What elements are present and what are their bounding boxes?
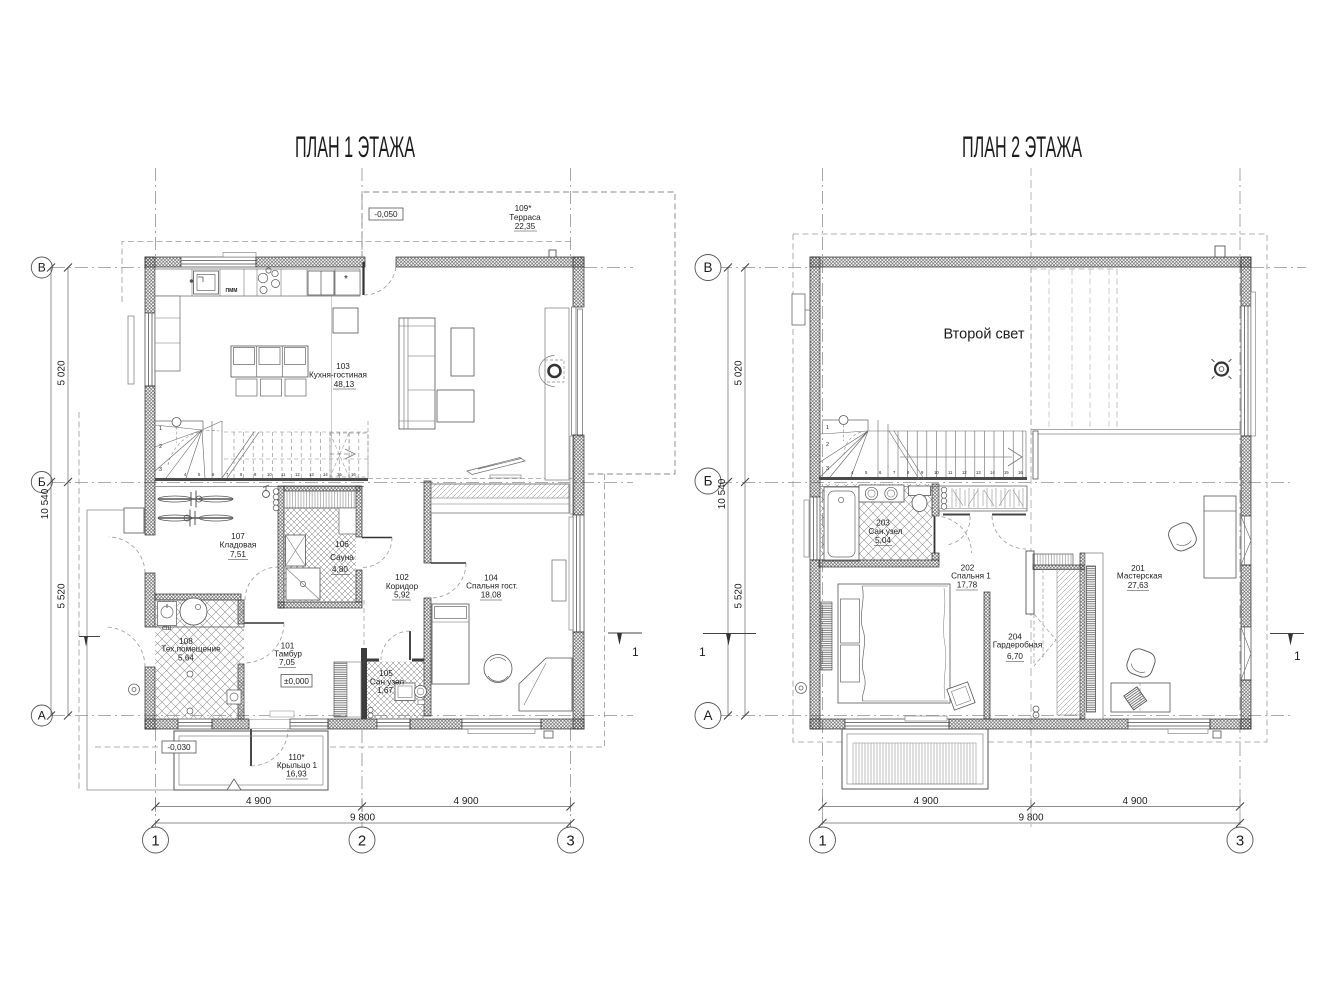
svg-text:Мастерская: Мастерская [1117, 572, 1162, 581]
svg-text:4,80: 4,80 [332, 565, 348, 574]
svg-text:16: 16 [351, 472, 356, 477]
svg-text:10: 10 [934, 470, 939, 475]
svg-text:А: А [38, 709, 46, 723]
svg-text:16: 16 [1018, 470, 1023, 475]
svg-text:±0,000: ±0,000 [284, 677, 309, 686]
svg-text:Спальня 1: Спальня 1 [951, 572, 991, 581]
svg-text:ПЛАН 1 ЭТАЖА: ПЛАН 1 ЭТАЖА [295, 131, 415, 164]
svg-text:5 520: 5 520 [734, 583, 745, 608]
svg-text:15: 15 [337, 472, 342, 477]
svg-text:3: 3 [1236, 832, 1244, 849]
svg-text:-0,050: -0,050 [374, 210, 398, 219]
svg-text:Б: Б [38, 475, 46, 489]
svg-text:102: 102 [395, 573, 409, 582]
svg-text:Кладовая: Кладовая [220, 541, 257, 550]
svg-text:17,78: 17,78 [957, 581, 978, 590]
svg-text:Сауна: Сауна [330, 553, 354, 562]
svg-text:27,63: 27,63 [1128, 581, 1149, 590]
svg-text:*: * [344, 274, 348, 285]
svg-text:Терраса: Терраса [509, 213, 541, 222]
svg-text:3: 3 [566, 832, 574, 849]
svg-text:5,04: 5,04 [875, 536, 891, 545]
svg-text:7,05: 7,05 [279, 658, 295, 667]
svg-text:3: 3 [826, 466, 829, 472]
svg-text:9 800: 9 800 [350, 813, 375, 824]
svg-text:4 900: 4 900 [1122, 796, 1147, 807]
svg-text:4 900: 4 900 [453, 796, 478, 807]
svg-text:106: 106 [335, 540, 349, 549]
svg-text:3: 3 [159, 467, 162, 473]
svg-text:10 540: 10 540 [40, 488, 51, 519]
svg-text:1: 1 [699, 645, 706, 659]
svg-text:Тех.помещение: Тех.помещение [161, 645, 221, 654]
svg-text:В: В [38, 261, 46, 275]
svg-text:13: 13 [309, 472, 314, 477]
svg-text:ПММ: ПММ [226, 288, 238, 294]
svg-text:2: 2 [358, 832, 366, 849]
svg-text:5,92: 5,92 [394, 591, 410, 600]
svg-text:Второй свет: Второй свет [943, 327, 1024, 343]
svg-text:5,64: 5,64 [178, 654, 194, 663]
svg-text:5 520: 5 520 [57, 583, 68, 608]
svg-text:В: В [703, 260, 712, 275]
svg-text:109*: 109* [515, 204, 533, 213]
svg-text:4 900: 4 900 [246, 796, 271, 807]
svg-text:10 540: 10 540 [717, 478, 728, 509]
svg-text:15: 15 [1004, 470, 1009, 475]
svg-text:1: 1 [826, 425, 829, 431]
svg-text:2: 2 [826, 442, 829, 448]
svg-text:16,93: 16,93 [286, 770, 307, 779]
svg-text:48,13: 48,13 [334, 380, 355, 389]
svg-text:11: 11 [281, 472, 286, 477]
svg-text:СШ: СШ [162, 626, 171, 632]
svg-text:1: 1 [818, 832, 826, 849]
svg-text:12: 12 [962, 470, 967, 475]
svg-text:14: 14 [990, 470, 995, 475]
svg-text:10: 10 [267, 472, 272, 477]
svg-text:-0,030: -0,030 [167, 743, 191, 752]
svg-text:1: 1 [159, 426, 162, 432]
svg-text:2: 2 [159, 444, 162, 450]
svg-text:4 900: 4 900 [913, 796, 938, 807]
svg-text:6,70: 6,70 [1007, 652, 1023, 661]
svg-text:22,35: 22,35 [515, 222, 536, 231]
svg-text:11: 11 [948, 470, 953, 475]
svg-text:12: 12 [295, 472, 300, 477]
svg-text:Спальня гост.: Спальня гост. [466, 582, 518, 591]
svg-text:9 800: 9 800 [1018, 813, 1043, 824]
svg-text:1: 1 [632, 645, 639, 659]
svg-text:1: 1 [1294, 649, 1301, 663]
svg-text:Сан.узел: Сан.узел [868, 527, 902, 536]
svg-text:5 020: 5 020 [734, 360, 745, 385]
svg-text:7,51: 7,51 [230, 550, 246, 559]
svg-text:18,08: 18,08 [481, 591, 502, 600]
svg-text:ПЛАН 2 ЭТАЖА: ПЛАН 2 ЭТАЖА [962, 131, 1082, 164]
svg-text:Б: Б [704, 474, 713, 489]
svg-text:А: А [703, 708, 712, 723]
svg-text:5 020: 5 020 [57, 360, 68, 385]
svg-text:Кухня-гостиная: Кухня-гостиная [309, 371, 367, 380]
svg-text:Гардеробная: Гардеробная [993, 641, 1043, 650]
svg-text:1,67: 1,67 [377, 686, 393, 695]
svg-text:1: 1 [151, 832, 159, 849]
svg-text:13: 13 [976, 470, 981, 475]
svg-text:14: 14 [323, 472, 328, 477]
